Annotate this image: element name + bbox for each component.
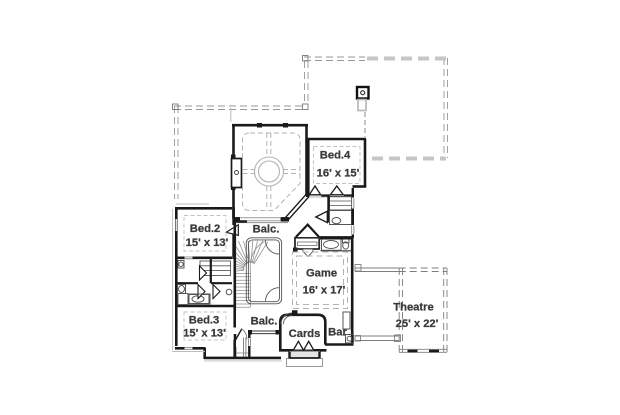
svg-text:Balc.: Balc.: [253, 224, 280, 236]
svg-text:Bed.4: Bed.4: [320, 150, 351, 162]
svg-text:Bed.3: Bed.3: [189, 315, 219, 327]
svg-text:15' x 13': 15' x 13': [183, 328, 226, 340]
svg-text:16' x 17': 16' x 17': [303, 285, 346, 297]
svg-text:16' x 15': 16' x 15': [317, 168, 360, 180]
svg-text:Balc.: Balc.: [251, 316, 278, 328]
svg-text:Bed.2: Bed.2: [190, 223, 220, 235]
svg-text:Game: Game: [306, 268, 337, 280]
svg-text:Bar: Bar: [328, 327, 347, 339]
svg-text:Theatre: Theatre: [393, 302, 433, 314]
svg-text:25' x 22': 25' x 22': [396, 318, 439, 330]
svg-text:15' x 13': 15' x 13': [186, 237, 229, 249]
svg-text:Cards: Cards: [289, 328, 321, 340]
